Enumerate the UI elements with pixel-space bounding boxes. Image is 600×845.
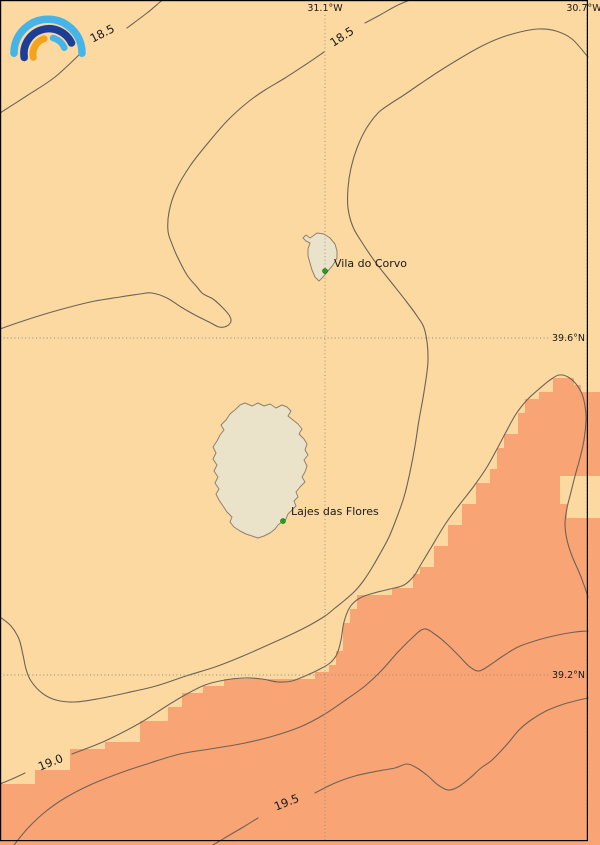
sea-temperature-map: 18.518.519.019.531.1°W30.7°W39.6°N39.2°N…	[0, 0, 600, 845]
place-label: Lajes das Flores	[291, 505, 379, 518]
place-dot-lajes-das-flores	[281, 519, 286, 524]
longitude-label: 30.7°W	[566, 3, 600, 14]
latitude-label: 39.2°N	[552, 670, 585, 681]
map-canvas: 18.518.519.019.531.1°W30.7°W39.6°N39.2°N…	[0, 0, 600, 845]
longitude-label: 31.1°W	[307, 3, 343, 14]
place-dot-vila-do-corvo	[323, 269, 328, 274]
place-label: Vila do Corvo	[334, 257, 407, 270]
latitude-label: 39.6°N	[552, 333, 585, 344]
